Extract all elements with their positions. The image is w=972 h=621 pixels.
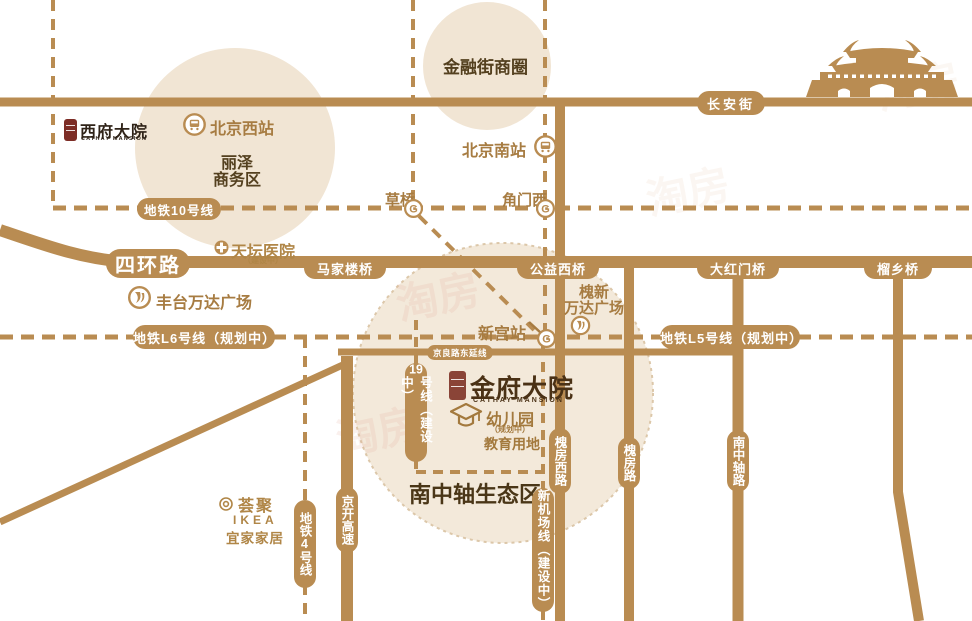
metro-line19-label: 19号线（建设中） — [405, 363, 427, 462]
gongyi-west-bridge-label: 公益西桥 — [517, 257, 599, 279]
majialou-bridge-label: 马家楼桥 — [304, 257, 386, 279]
metro-line10-label: 地铁10号线 — [137, 198, 221, 220]
seal-icon — [449, 371, 466, 400]
metro-logo-icon: G — [403, 198, 424, 219]
lize-business-district-label: 丽泽 商务区 — [205, 156, 269, 190]
location-map: 淘房 淘房 淘房 淘房 — [0, 0, 972, 621]
metro-logo-icon: G — [535, 198, 556, 219]
metro-l6-label: 地铁L6号线（规划中） — [133, 325, 275, 349]
metro-line4-label: 地铁4号线 — [294, 500, 316, 588]
hospital-cross-icon — [214, 240, 229, 255]
metro-l5-label: 地铁L5号线（规划中） — [660, 325, 800, 349]
nanzhongzhou-road-label: 南中轴路 — [727, 430, 749, 492]
beijing-south-station-label: 北京南站 — [462, 137, 526, 161]
jingkai-expressway-diagonal — [0, 363, 347, 522]
graduation-cap-icon — [450, 403, 483, 432]
metro-logo-icon: G — [536, 328, 557, 349]
train-station-icon — [533, 134, 558, 159]
beijing-west-station-label: 北京西站 — [210, 115, 274, 139]
huaifang-road-label: 槐房路 — [618, 437, 640, 489]
wanda-icon — [570, 315, 591, 336]
line19-number: 19 — [409, 363, 423, 376]
train-station-icon — [182, 112, 207, 137]
ikea-en-label: IKEA — [233, 513, 278, 527]
financial-street-label: 金融街商圈 — [443, 53, 528, 78]
new-airport-line-label: 新机场线（建设中） — [532, 488, 554, 612]
liuxiang-bridge-label: 榴乡桥 — [864, 257, 932, 279]
huaifang-west-road-label: 槐房西路 — [549, 428, 571, 494]
map-base-layer: 淘房 淘房 淘房 淘房 — [0, 0, 972, 621]
jingliang-road-label: 京良路东延线 — [427, 345, 493, 360]
xifu-mansion-logo-sub: CATHAY MANSION — [81, 136, 147, 142]
jingkai-expressway-label: 京开高速 — [336, 487, 358, 553]
fourth-ring-label: 四环路 — [106, 249, 190, 278]
huiju-icon — [219, 497, 233, 511]
xingong-station-label: 新宫站 — [478, 320, 526, 344]
watermark-text: 淘房 — [642, 160, 734, 223]
wanda-icon — [127, 285, 152, 310]
line19-text: 号线（建设中） — [397, 376, 435, 463]
lize-line2: 商务区 — [205, 173, 269, 190]
lize-line1: 丽泽 — [205, 156, 269, 173]
fengtai-wanda-label: 丰台万达广场 — [156, 289, 252, 313]
ikea-cn-label: 宜家家居 — [226, 527, 284, 547]
liuxiang-road — [898, 256, 919, 621]
jinfu-mansion-logo-sub: CATHAY MANSION — [473, 397, 564, 404]
dahongmen-bridge-label: 大红门桥 — [697, 257, 779, 279]
changan-street-label: 长安街 — [697, 91, 765, 115]
huaixin-wanda-label: 槐新 万达广场 — [560, 285, 628, 317]
huaixin-wanda-line1: 槐新 — [560, 285, 628, 301]
tiantan-hospital-sub-label: （建设中） — [231, 255, 295, 266]
eco-zone-label: 南中轴生态区 — [409, 477, 541, 509]
education-land-label: 教育用地 — [484, 434, 540, 454]
seal-icon — [64, 119, 77, 141]
